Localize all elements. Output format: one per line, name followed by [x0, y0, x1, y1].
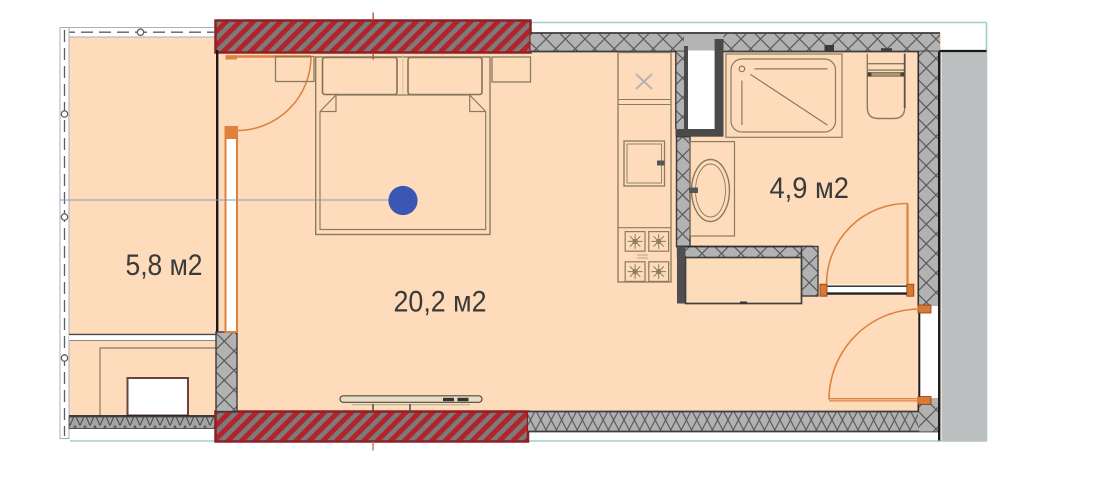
svg-text:5,8 м2: 5,8 м2: [126, 249, 203, 282]
svg-text:4,9 м2: 4,9 м2: [770, 172, 850, 205]
svg-text:20,2 м2: 20,2 м2: [394, 286, 487, 319]
